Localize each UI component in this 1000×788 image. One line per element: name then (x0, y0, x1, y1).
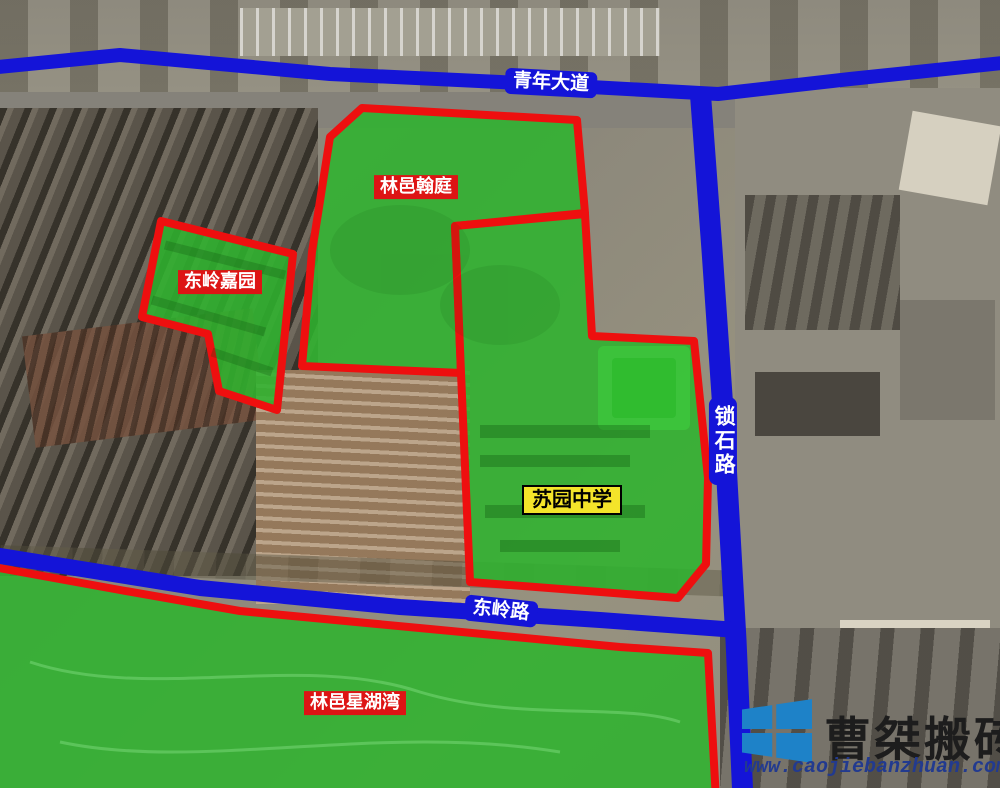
region-label-dongling-jiayuan: 东岭嘉园 (178, 270, 262, 294)
road-qingnian-avenue (0, 55, 1000, 94)
region-label-suyuan-middle-school: 苏园中学 (522, 485, 622, 515)
road-label-suoshi-road: 锁石路 (709, 397, 737, 485)
region-label-linyi-hanting: 林邑翰庭 (374, 175, 458, 199)
satellite-map-image: 曹桀搬砖 www.caojiebanzhuan.com 青年大道锁石路东岭路林邑… (0, 0, 1000, 788)
map-annotation-overlay (0, 0, 1000, 788)
road-label-qingnian-avenue: 青年大道 (504, 68, 597, 99)
sports-field-inner (612, 358, 676, 418)
region-label-linyi-xinghuwan: 林邑星湖湾 (304, 691, 406, 715)
